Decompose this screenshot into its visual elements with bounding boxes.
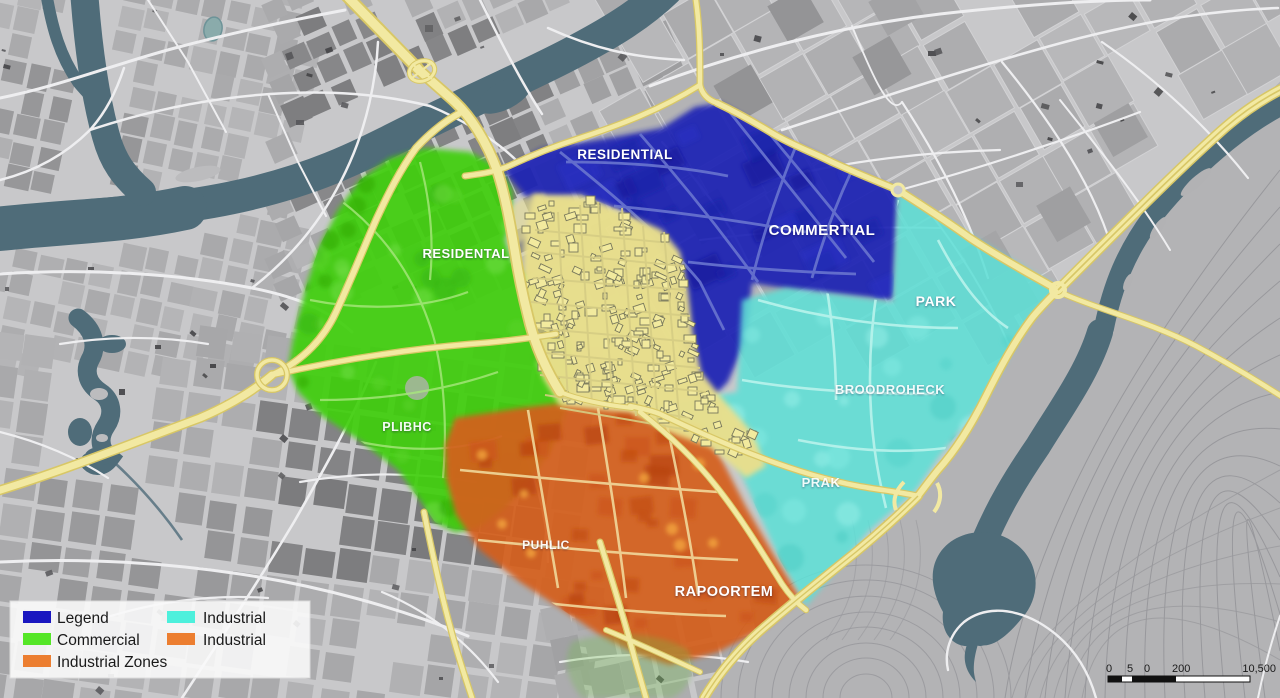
svg-text:COMMERTIAL: COMMERTIAL bbox=[769, 222, 876, 239]
svg-text:BROODROHECK: BROODROHECK bbox=[835, 382, 945, 397]
svg-text:PUHLIC: PUHLIC bbox=[522, 538, 570, 552]
svg-text:PLIBHC: PLIBHC bbox=[382, 420, 432, 434]
svg-text:10,500: 10,500 bbox=[1242, 663, 1276, 675]
svg-text:0: 0 bbox=[1144, 663, 1150, 675]
svg-text:200: 200 bbox=[1172, 663, 1190, 675]
svg-text:0: 0 bbox=[1106, 663, 1112, 675]
svg-text:Commercial: Commercial bbox=[57, 632, 140, 649]
svg-text:PRAK: PRAK bbox=[802, 475, 841, 490]
svg-text:Industrial: Industrial bbox=[203, 610, 266, 627]
svg-text:Industrial Zones: Industrial Zones bbox=[57, 654, 168, 671]
svg-text:RESIDENTAL: RESIDENTAL bbox=[422, 246, 509, 261]
svg-text:RESIDENTIAL: RESIDENTIAL bbox=[577, 147, 673, 162]
svg-text:Legend: Legend bbox=[57, 610, 109, 627]
svg-text:PARK: PARK bbox=[916, 293, 957, 309]
svg-text:5: 5 bbox=[1127, 663, 1133, 675]
svg-text:RAPOORTEM: RAPOORTEM bbox=[675, 584, 774, 600]
svg-text:Industrial: Industrial bbox=[203, 632, 266, 649]
